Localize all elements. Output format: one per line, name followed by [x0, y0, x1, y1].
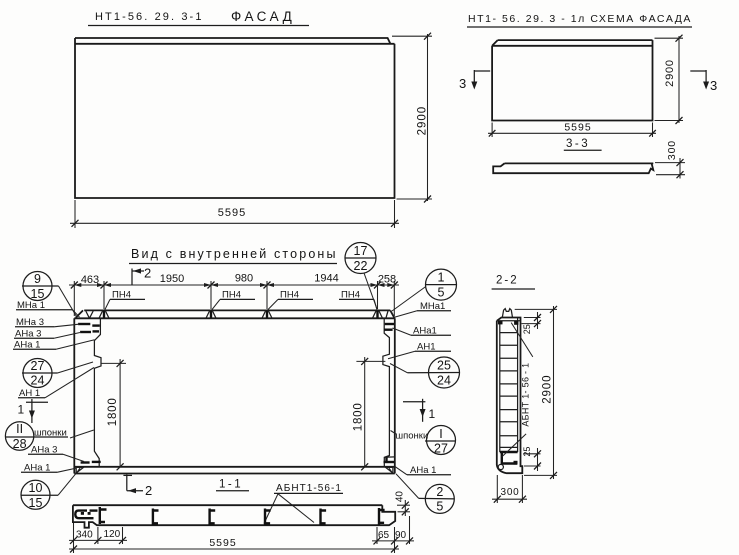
svg-text:2900: 2900 [416, 106, 428, 136]
svg-text:1950: 1950 [160, 273, 184, 285]
svg-text:24: 24 [437, 374, 451, 388]
svg-text:2: 2 [436, 485, 443, 499]
svg-text:27: 27 [434, 442, 448, 456]
svg-text:2900: 2900 [664, 59, 676, 87]
svg-text:2900: 2900 [542, 375, 554, 404]
svg-text:1800: 1800 [352, 402, 364, 431]
svg-text:2-2: 2-2 [496, 275, 519, 287]
svg-text:25: 25 [522, 447, 532, 457]
svg-text:27: 27 [31, 359, 45, 373]
svg-text:I: I [439, 427, 442, 441]
svg-text:25: 25 [437, 359, 451, 373]
svg-text:шпонки: шпонки [34, 428, 67, 439]
svg-text:120: 120 [104, 529, 121, 540]
svg-text:300: 300 [500, 487, 519, 498]
svg-text:АБНТ1-56-1: АБНТ1-56-1 [276, 483, 342, 494]
svg-text:24: 24 [31, 374, 45, 388]
svg-text:5: 5 [438, 286, 445, 300]
svg-text:II: II [16, 422, 23, 436]
svg-text:3: 3 [459, 76, 466, 91]
svg-text:5: 5 [436, 499, 443, 513]
svg-text:65: 65 [378, 530, 390, 541]
svg-text:1-1: 1-1 [219, 479, 243, 491]
svg-text:НТ1- 56. 29. 3 - 1л СХЕМА ФАСА: НТ1- 56. 29. 3 - 1л СХЕМА ФАСАДА [468, 13, 692, 25]
svg-text:5595: 5595 [564, 122, 591, 134]
svg-text:25: 25 [522, 324, 532, 334]
svg-text:300: 300 [666, 140, 678, 160]
svg-text:2: 2 [145, 483, 152, 498]
svg-text:1800: 1800 [107, 397, 119, 426]
svg-text:90: 90 [395, 530, 407, 541]
svg-text:22: 22 [354, 259, 368, 273]
svg-text:463: 463 [81, 274, 99, 286]
svg-text:1944: 1944 [314, 273, 338, 285]
svg-text:10: 10 [29, 481, 43, 495]
svg-text:3-3: 3-3 [566, 138, 590, 150]
svg-text:ФАСАД: ФАСАД [231, 9, 295, 24]
svg-text:9: 9 [34, 272, 41, 286]
svg-text:НТ1-56. 29. 3-1: НТ1-56. 29. 3-1 [95, 11, 204, 23]
svg-text:15: 15 [29, 496, 43, 510]
svg-text:шпонки: шпонки [396, 431, 429, 442]
svg-text:40: 40 [395, 491, 406, 503]
svg-text:3: 3 [710, 78, 717, 93]
svg-text:28: 28 [13, 437, 27, 451]
svg-text:5595: 5595 [209, 537, 236, 549]
svg-text:980: 980 [235, 273, 253, 285]
svg-text:Вид с внутренней стороны: Вид с внутренней стороны [131, 247, 338, 261]
svg-text:258: 258 [378, 274, 396, 286]
svg-text:АБНТ 1- 56 - 1: АБНТ 1- 56 - 1 [521, 363, 531, 427]
svg-text:1: 1 [429, 407, 436, 421]
svg-text:15: 15 [31, 287, 45, 301]
svg-text:2: 2 [144, 266, 151, 281]
svg-text:17: 17 [354, 244, 368, 258]
svg-text:340: 340 [76, 530, 93, 541]
svg-text:1: 1 [438, 271, 445, 285]
svg-text:1: 1 [18, 403, 25, 417]
svg-text:5595: 5595 [218, 207, 246, 219]
